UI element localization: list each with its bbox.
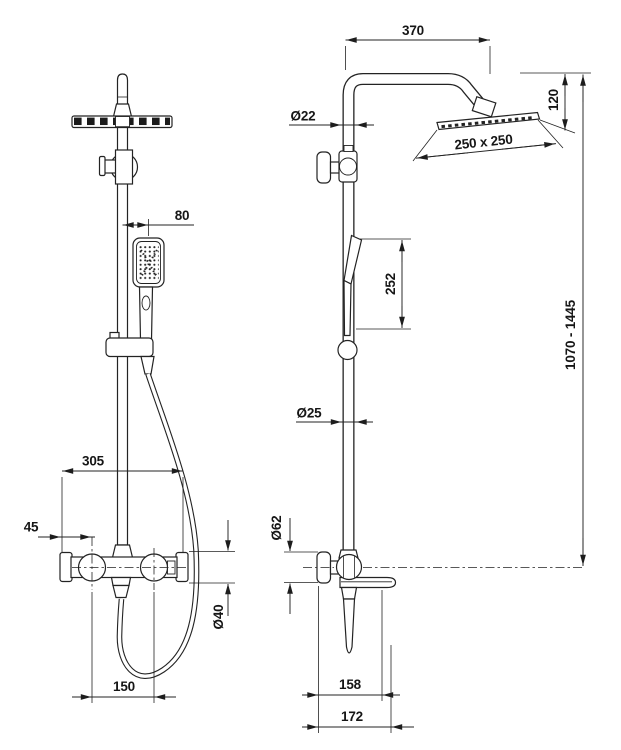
dim-wall-flange-diameter: Ø62 — [269, 516, 318, 614]
dim-handshower-offset: 80 — [123, 208, 195, 236]
side-view — [303, 79, 584, 653]
head-connector-front — [114, 104, 132, 117]
dim-mixer-left-offset: 45 — [24, 520, 95, 538]
dim-label-158: 158 — [339, 677, 362, 692]
riser-and-arm-side — [349, 79, 483, 588]
wall-bracket-side — [317, 146, 357, 184]
dim-label-d22: Ø22 — [291, 109, 316, 124]
dim-label-172: 172 — [341, 709, 363, 724]
mixer-left-cap — [60, 553, 72, 582]
riser-pipe-front — [118, 74, 128, 545]
dim-knob-spacing: 150 — [72, 592, 176, 703]
dim-head-size: 250 x 250 — [413, 120, 563, 161]
hose-outlet-ring — [112, 578, 131, 586]
dim-label-305: 305 — [82, 454, 105, 469]
handshower-hang-ring — [342, 588, 357, 600]
mixer-front — [60, 537, 188, 598]
slider-bracket-front — [106, 333, 154, 375]
hose-outlet-cone — [113, 586, 129, 598]
dim-label-d25: Ø25 — [297, 406, 323, 421]
mixer-side — [303, 550, 584, 653]
dim-label-120: 120 — [546, 89, 561, 111]
dim-handshower-length: 252 — [356, 239, 411, 329]
head-connector-side — [472, 97, 496, 117]
mixer-right-cap — [176, 553, 188, 582]
handshower-hang-cone — [344, 599, 355, 653]
hand-shower-front — [133, 238, 164, 340]
dim-label-80: 80 — [175, 208, 190, 223]
shower-system-drawing: 370 120 250 x 250 Ø22 80 — [0, 0, 621, 750]
dim-upper-pipe-diameter: Ø22 — [289, 109, 374, 126]
mixer-riser-union — [113, 545, 133, 558]
handle-button — [142, 296, 150, 310]
slider-knob-side — [338, 341, 357, 360]
front-view — [60, 74, 197, 676]
dim-label-d62: Ø62 — [269, 516, 284, 541]
dim-head-drop: 120 — [520, 73, 591, 133]
valve-knob-side — [337, 555, 362, 580]
dim-arm-reach: 370 — [346, 23, 491, 74]
dim-label-252: 252 — [383, 273, 398, 295]
dim-label-45: 45 — [24, 520, 39, 535]
dim-column-height-range: 1070 - 1445 — [563, 75, 583, 567]
dim-label-d40: Ø40 — [211, 605, 226, 630]
hand-shower-handle-front — [140, 287, 153, 340]
dim-label-150: 150 — [113, 679, 135, 694]
dim-label-1070-1445: 1070 - 1445 — [563, 299, 578, 370]
dim-lower-pipe-diameter: Ø25 — [296, 406, 373, 423]
shower-hose — [119, 374, 196, 676]
overhead-shower-front — [72, 116, 172, 128]
dim-label-370: 370 — [402, 23, 424, 38]
wall-bracket-front — [100, 150, 138, 184]
technical-drawing-page: 370 120 250 x 250 Ø22 80 — [0, 0, 621, 750]
